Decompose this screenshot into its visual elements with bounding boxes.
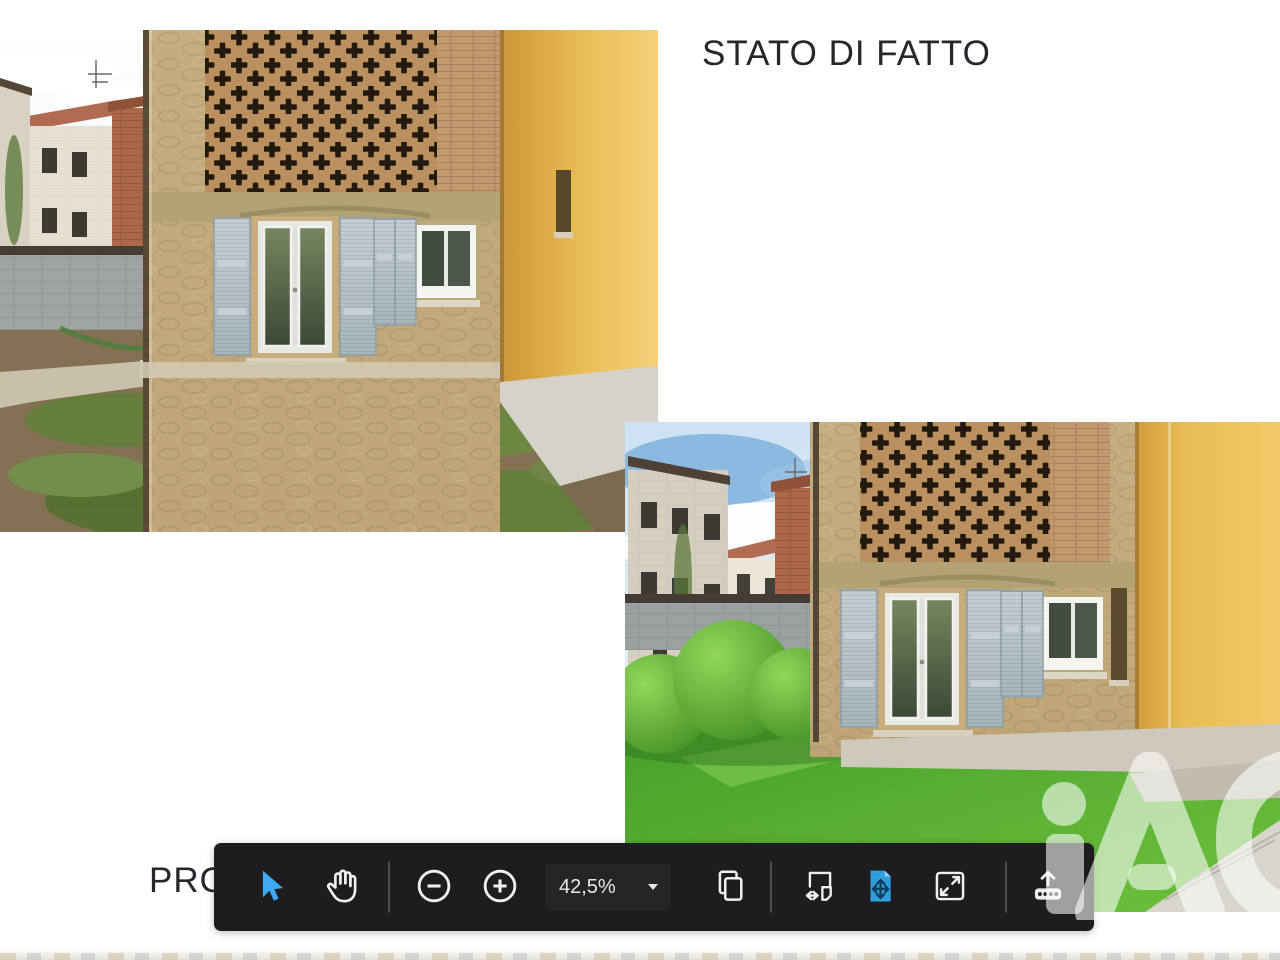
zoom-in-button[interactable] (480, 867, 520, 907)
photo-stato-di-fatto (0, 30, 670, 544)
fit-page-icon (861, 867, 899, 908)
minus-circle-icon (415, 867, 453, 908)
pages-icon (711, 867, 749, 908)
page-title: STATO DI FATTO (702, 34, 991, 74)
toolbar-divider (770, 861, 772, 913)
photo-canvas (0, 0, 1280, 960)
fit-width-icon (801, 867, 839, 908)
zoom-level-value: 42,5% (559, 876, 616, 899)
upload-icon (1029, 867, 1067, 908)
select-tool-button[interactable] (250, 867, 290, 907)
copy-pages-button[interactable] (710, 867, 750, 907)
chevron-down-icon (647, 883, 659, 891)
plus-circle-icon (481, 867, 519, 908)
zoom-level-dropdown[interactable]: 42,5% (545, 864, 671, 910)
pan-tool-button[interactable] (321, 867, 361, 907)
toolbar-divider (388, 861, 390, 913)
fit-page-button[interactable] (860, 867, 900, 907)
upload-button[interactable] (1028, 867, 1068, 907)
photo-progetto (595, 422, 1280, 912)
hand-icon (321, 866, 361, 909)
cursor-icon (251, 867, 289, 908)
toolbar-divider (1005, 861, 1007, 913)
fit-width-button[interactable] (800, 867, 840, 907)
fullscreen-button[interactable] (930, 867, 970, 907)
expand-icon (931, 867, 969, 908)
pdf-viewer-page: STATO DI FATTO PRO (0, 0, 1280, 960)
viewer-toolbar: 42,5% (214, 843, 1094, 931)
zoom-out-button[interactable] (414, 867, 454, 907)
